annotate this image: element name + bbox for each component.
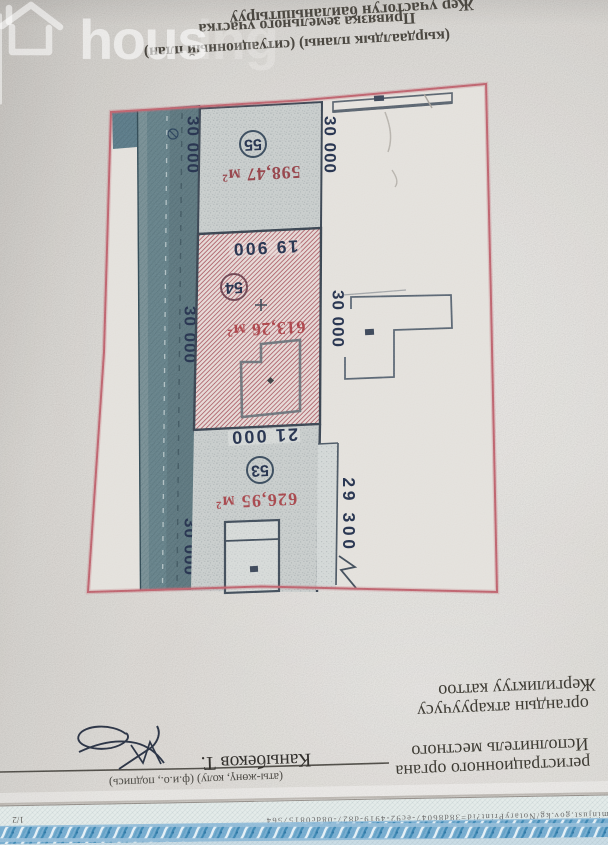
svg-text:ing: ing: [197, 8, 278, 71]
svg-text:hous: hous: [79, 8, 207, 71]
